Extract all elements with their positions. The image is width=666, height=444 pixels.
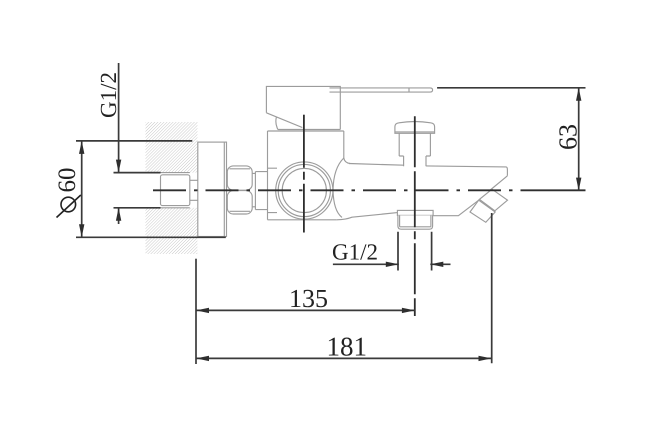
svg-text:135: 135	[289, 284, 328, 313]
svg-text:G1/2: G1/2	[332, 240, 378, 265]
svg-text:60: 60	[54, 168, 81, 193]
svg-text:181: 181	[327, 332, 368, 362]
svg-text:63: 63	[554, 124, 583, 150]
svg-text:G1/2: G1/2	[96, 72, 121, 118]
